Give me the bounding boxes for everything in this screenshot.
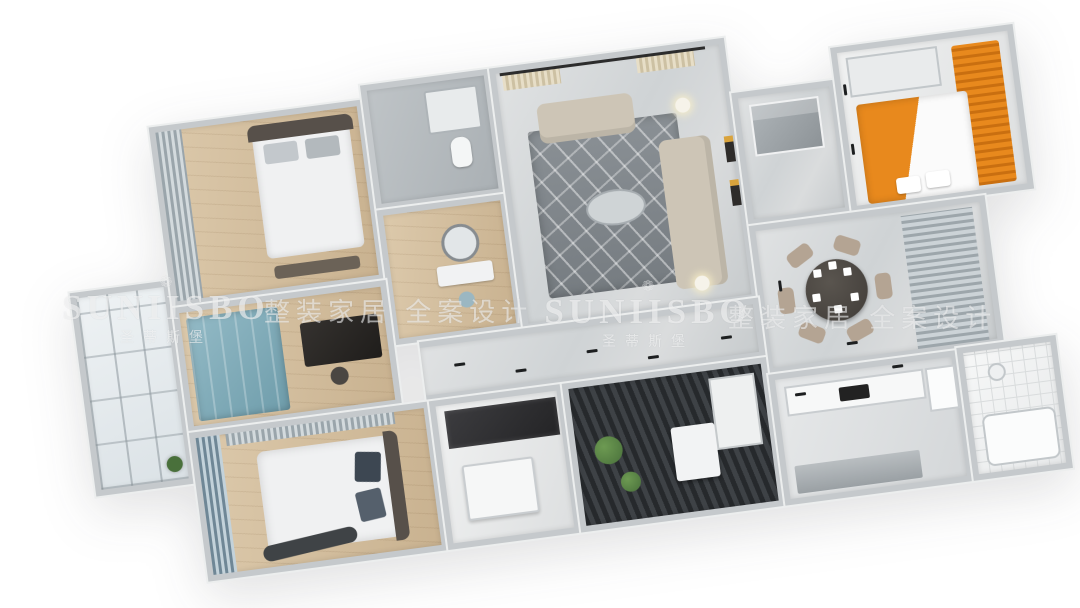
- cooktop: [838, 384, 870, 402]
- room-living: [489, 38, 758, 331]
- room-dressing-area: [376, 194, 523, 346]
- blue-cabinet-bed: [186, 306, 291, 421]
- washing-machine: [670, 422, 721, 481]
- dining-chair: [845, 317, 876, 344]
- patterned-pillow: [355, 487, 387, 522]
- bed-bench: [274, 255, 361, 279]
- black-desk: [299, 313, 382, 367]
- room-foyer: [731, 80, 852, 226]
- floorplan-render-canvas: ❁ SUNIISBO 圣蒂斯堡 整装家居 全案设计 ❁ SUNIISBO 圣蒂斯…: [0, 0, 1080, 608]
- dark-wardrobe: [444, 397, 560, 449]
- wall-art: [729, 179, 741, 206]
- dining-chair: [874, 272, 893, 300]
- display-cabinet: [749, 96, 825, 157]
- room-master: [189, 401, 449, 581]
- room-bedroom-2: [149, 100, 386, 309]
- window-curtain: [155, 129, 203, 301]
- room-laundry: [562, 357, 786, 533]
- patterned-pillow: [355, 452, 381, 482]
- bathtub: [981, 406, 1061, 467]
- stool: [458, 291, 476, 309]
- kids-desk: [846, 46, 942, 98]
- tatami-bed: [856, 90, 980, 204]
- striped-curtain: [196, 435, 238, 575]
- place-setting: [812, 293, 821, 302]
- room-desk-nook: [429, 384, 581, 550]
- toilet: [450, 136, 474, 168]
- room-bathroom-2: [956, 335, 1073, 481]
- room-kitchen: [768, 350, 974, 506]
- fridge: [925, 364, 960, 412]
- sink: [987, 362, 1007, 382]
- dining-table: [802, 255, 872, 325]
- window-blinds: [901, 207, 990, 349]
- bed: [251, 119, 365, 259]
- dining-chair: [797, 321, 827, 345]
- wall-art: [724, 135, 736, 162]
- bed-headboard: [382, 430, 410, 541]
- pillow: [896, 175, 922, 194]
- floor-lamp: [674, 97, 691, 114]
- plant: [593, 435, 624, 466]
- pillow: [925, 169, 951, 188]
- desk-chair: [330, 366, 350, 386]
- pillow: [304, 135, 340, 159]
- shower: [423, 84, 482, 135]
- apartment-floorplan: [48, 5, 1033, 602]
- plant: [166, 455, 184, 473]
- white-cabinet: [708, 373, 763, 450]
- round-mirror: [439, 222, 482, 265]
- dining-chair: [785, 241, 815, 270]
- white-desk-unit: [461, 456, 540, 521]
- place-setting: [843, 267, 852, 276]
- plant: [620, 470, 642, 492]
- room-bathroom-1: [360, 69, 505, 211]
- place-setting: [834, 305, 843, 314]
- place-setting: [813, 269, 822, 278]
- room-kids: [830, 24, 1034, 213]
- dining-chair: [832, 234, 862, 257]
- place-setting: [828, 261, 837, 270]
- island-counter: [794, 450, 923, 494]
- pillow: [263, 140, 299, 164]
- place-setting: [850, 292, 859, 301]
- vanity-table: [436, 260, 494, 287]
